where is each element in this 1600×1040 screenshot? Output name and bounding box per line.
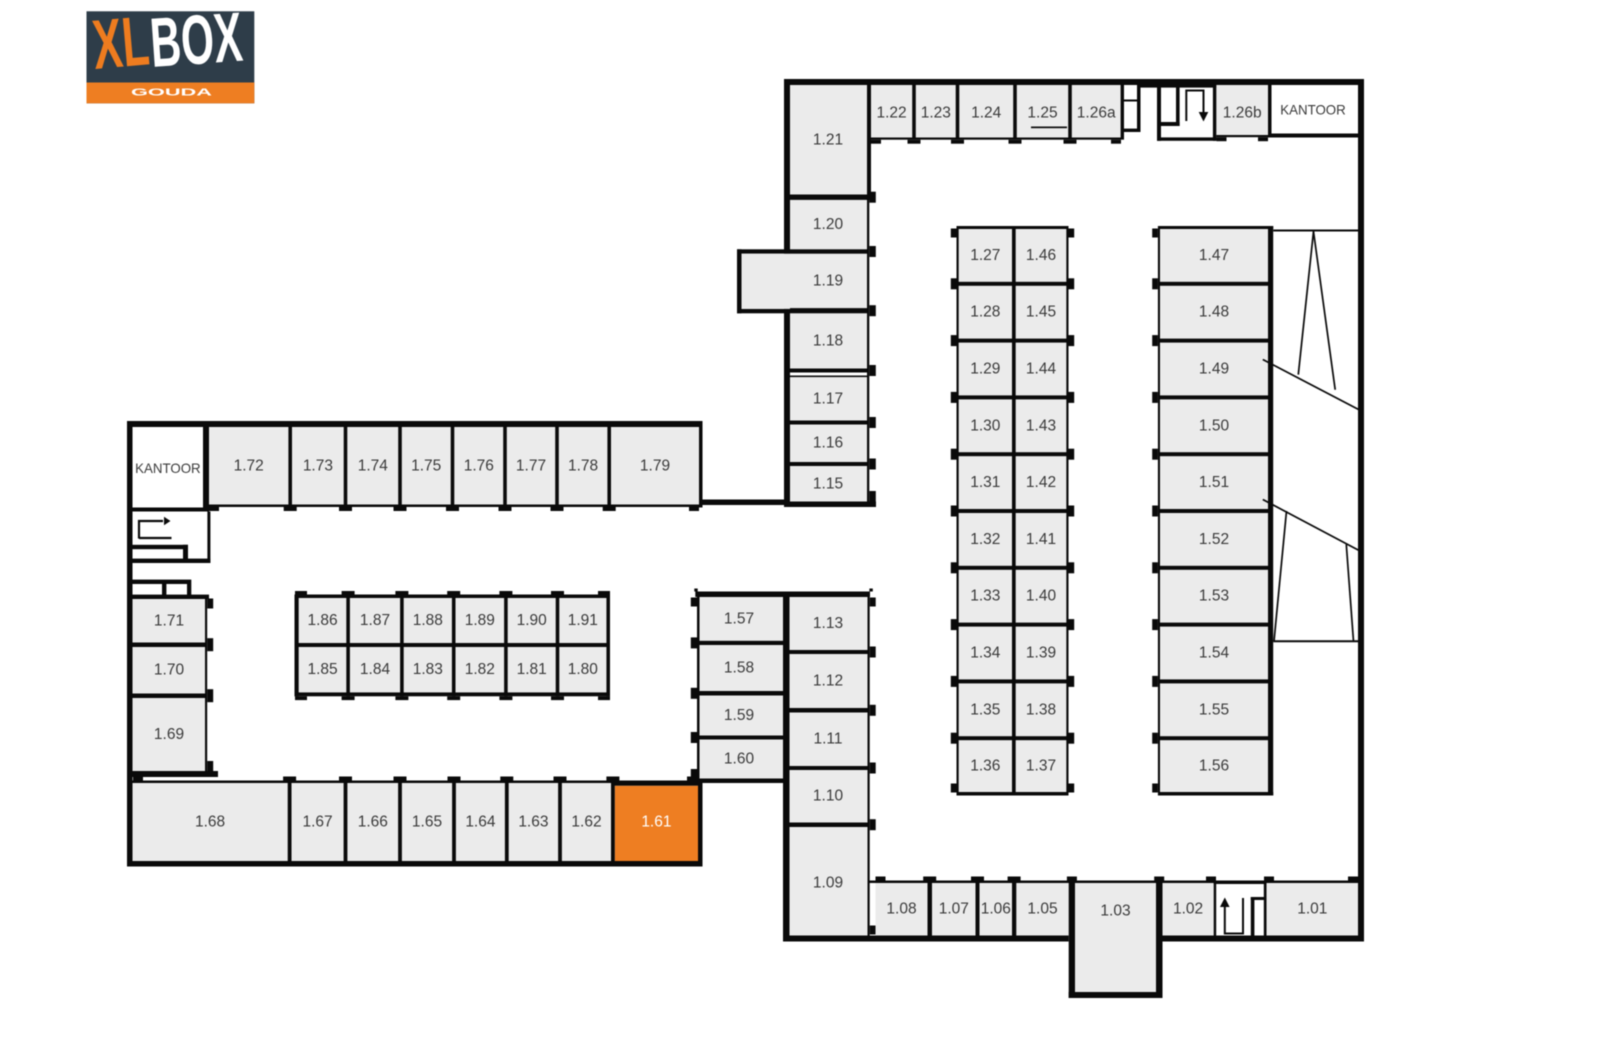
svg-text:1.49: 1.49	[1199, 361, 1229, 378]
svg-text:1.71: 1.71	[154, 612, 184, 629]
svg-text:1.13: 1.13	[813, 615, 843, 632]
svg-text:1.64: 1.64	[465, 814, 496, 831]
svg-text:1.76: 1.76	[464, 458, 494, 475]
svg-text:1.85: 1.85	[308, 661, 338, 678]
svg-text:1.40: 1.40	[1026, 588, 1057, 605]
svg-text:1.22: 1.22	[877, 105, 907, 122]
svg-text:BOX: BOX	[148, 0, 245, 82]
svg-text:1.63: 1.63	[518, 814, 548, 831]
svg-text:1.51: 1.51	[1199, 474, 1229, 491]
svg-text:1.03: 1.03	[1100, 903, 1130, 920]
svg-text:1.05: 1.05	[1027, 901, 1057, 918]
svg-text:1.39: 1.39	[1026, 645, 1056, 662]
svg-text:1.62: 1.62	[571, 814, 601, 831]
svg-text:1.43: 1.43	[1026, 417, 1056, 434]
svg-text:1.21: 1.21	[813, 131, 843, 148]
svg-text:1.19: 1.19	[813, 272, 843, 289]
svg-text:1.45: 1.45	[1026, 304, 1056, 321]
svg-text:1.59: 1.59	[724, 707, 754, 724]
svg-text:1.80: 1.80	[568, 661, 599, 678]
svg-text:1.31: 1.31	[970, 474, 1000, 491]
svg-text:1.53: 1.53	[1199, 588, 1229, 605]
svg-text:1.25: 1.25	[1027, 105, 1057, 122]
svg-text:1.34: 1.34	[970, 645, 1001, 662]
svg-text:1.72: 1.72	[234, 458, 264, 475]
svg-text:1.70: 1.70	[154, 662, 185, 679]
svg-text:1.86: 1.86	[308, 612, 338, 629]
svg-text:GOUDA: GOUDA	[131, 87, 213, 99]
svg-text:1.08: 1.08	[886, 901, 916, 918]
svg-text:1.12: 1.12	[813, 673, 843, 690]
svg-text:1.87: 1.87	[360, 612, 390, 629]
svg-text:1.75: 1.75	[411, 458, 441, 475]
svg-text:1.35: 1.35	[970, 701, 1000, 718]
svg-text:1.58: 1.58	[724, 660, 754, 677]
svg-text:1.66: 1.66	[358, 814, 388, 831]
svg-text:1.20: 1.20	[813, 216, 844, 233]
svg-text:1.81: 1.81	[517, 661, 547, 678]
svg-text:1.27: 1.27	[970, 247, 1000, 264]
svg-text:1.41: 1.41	[1026, 531, 1056, 548]
svg-text:1.54: 1.54	[1199, 645, 1230, 662]
svg-text:1.37: 1.37	[1026, 758, 1056, 775]
svg-text:1.56: 1.56	[1199, 758, 1229, 775]
svg-text:1.36: 1.36	[970, 758, 1000, 775]
svg-text:1.90: 1.90	[517, 612, 548, 629]
svg-text:1.69: 1.69	[154, 726, 184, 743]
svg-text:1.48: 1.48	[1199, 304, 1229, 321]
svg-text:1.52: 1.52	[1199, 531, 1229, 548]
svg-text:1.29: 1.29	[970, 361, 1000, 378]
svg-text:1.77: 1.77	[516, 458, 546, 475]
svg-text:1.89: 1.89	[465, 612, 495, 629]
svg-text:KANTOOR: KANTOOR	[135, 460, 201, 476]
svg-text:1.74: 1.74	[358, 458, 389, 475]
svg-text:1.15: 1.15	[813, 475, 843, 492]
svg-text:1.17: 1.17	[813, 390, 843, 407]
svg-text:XL: XL	[90, 1, 153, 84]
svg-text:1.11: 1.11	[813, 731, 842, 748]
svg-text:1.67: 1.67	[303, 814, 333, 831]
svg-text:1.60: 1.60	[724, 751, 755, 768]
svg-text:1.57: 1.57	[724, 610, 754, 627]
svg-text:1.26b: 1.26b	[1223, 105, 1262, 122]
svg-text:1.47: 1.47	[1199, 247, 1229, 264]
svg-text:1.78: 1.78	[568, 458, 598, 475]
svg-text:1.32: 1.32	[970, 531, 1000, 548]
svg-text:1.07: 1.07	[939, 901, 969, 918]
svg-text:1.83: 1.83	[413, 661, 443, 678]
svg-text:1.26a: 1.26a	[1077, 105, 1116, 122]
svg-text:1.46: 1.46	[1026, 247, 1056, 264]
svg-text:1.65: 1.65	[412, 814, 442, 831]
svg-text:1.84: 1.84	[360, 661, 391, 678]
svg-text:1.28: 1.28	[970, 304, 1000, 321]
svg-text:1.61: 1.61	[641, 814, 671, 831]
svg-text:1.91: 1.91	[568, 612, 598, 629]
svg-text:1.82: 1.82	[465, 661, 495, 678]
svg-text:1.73: 1.73	[303, 458, 333, 475]
svg-text:1.33: 1.33	[970, 588, 1000, 605]
svg-text:1.88: 1.88	[413, 612, 443, 629]
svg-text:1.50: 1.50	[1199, 417, 1230, 434]
svg-text:1.24: 1.24	[971, 105, 1002, 122]
svg-text:1.10: 1.10	[813, 788, 844, 805]
svg-text:KANTOOR: KANTOOR	[1280, 102, 1346, 118]
svg-text:1.16: 1.16	[813, 435, 843, 452]
svg-text:1.23: 1.23	[921, 105, 951, 122]
svg-text:1.55: 1.55	[1199, 701, 1229, 718]
svg-text:1.02: 1.02	[1173, 901, 1203, 918]
svg-text:1.30: 1.30	[970, 417, 1001, 434]
svg-text:1.44: 1.44	[1026, 361, 1057, 378]
svg-text:1.06: 1.06	[981, 901, 1011, 918]
svg-text:1.09: 1.09	[813, 875, 843, 892]
svg-text:1.79: 1.79	[640, 458, 670, 475]
svg-text:1.68: 1.68	[195, 814, 225, 831]
svg-text:1.38: 1.38	[1026, 701, 1056, 718]
svg-text:1.18: 1.18	[813, 332, 843, 349]
svg-text:1.01: 1.01	[1297, 901, 1327, 918]
svg-text:1.42: 1.42	[1026, 474, 1056, 491]
